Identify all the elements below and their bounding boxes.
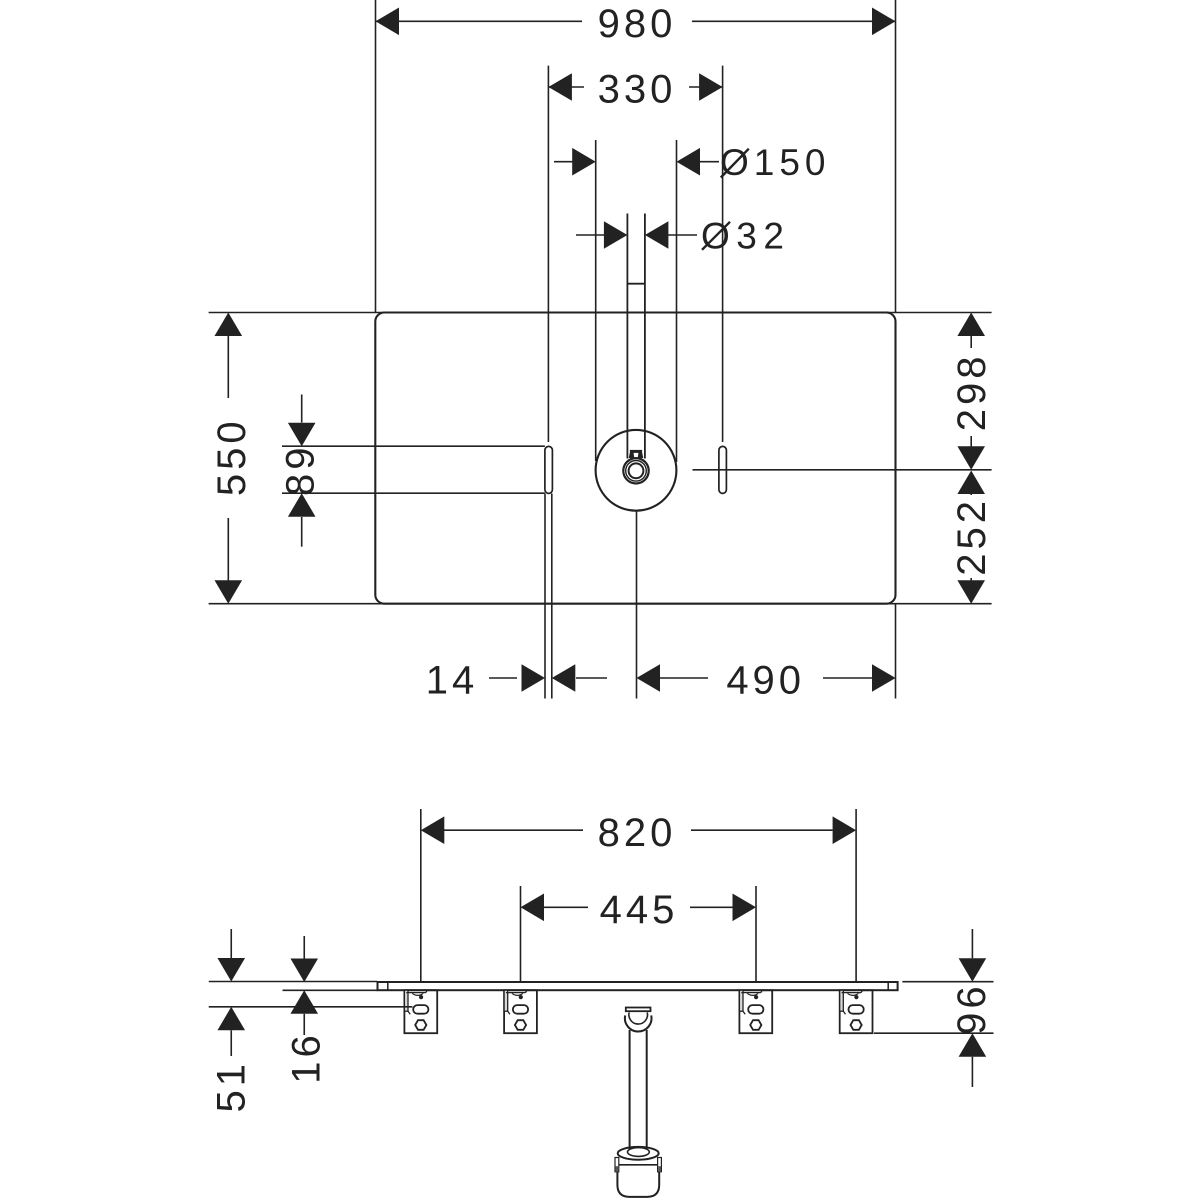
svg-text:820: 820 [598, 811, 677, 855]
svg-text:96: 96 [950, 982, 994, 1035]
svg-text:298: 298 [950, 353, 994, 432]
svg-text:980: 980 [598, 2, 677, 46]
svg-text:14: 14 [426, 659, 479, 703]
svg-text:51: 51 [209, 1060, 253, 1113]
svg-text:330: 330 [598, 68, 677, 112]
svg-text:252: 252 [950, 497, 994, 576]
svg-text:16: 16 [284, 1031, 328, 1084]
svg-text:445: 445 [600, 888, 679, 932]
svg-text:490: 490 [726, 659, 805, 703]
svg-text:550: 550 [210, 417, 254, 496]
svg-text:89: 89 [278, 443, 322, 496]
